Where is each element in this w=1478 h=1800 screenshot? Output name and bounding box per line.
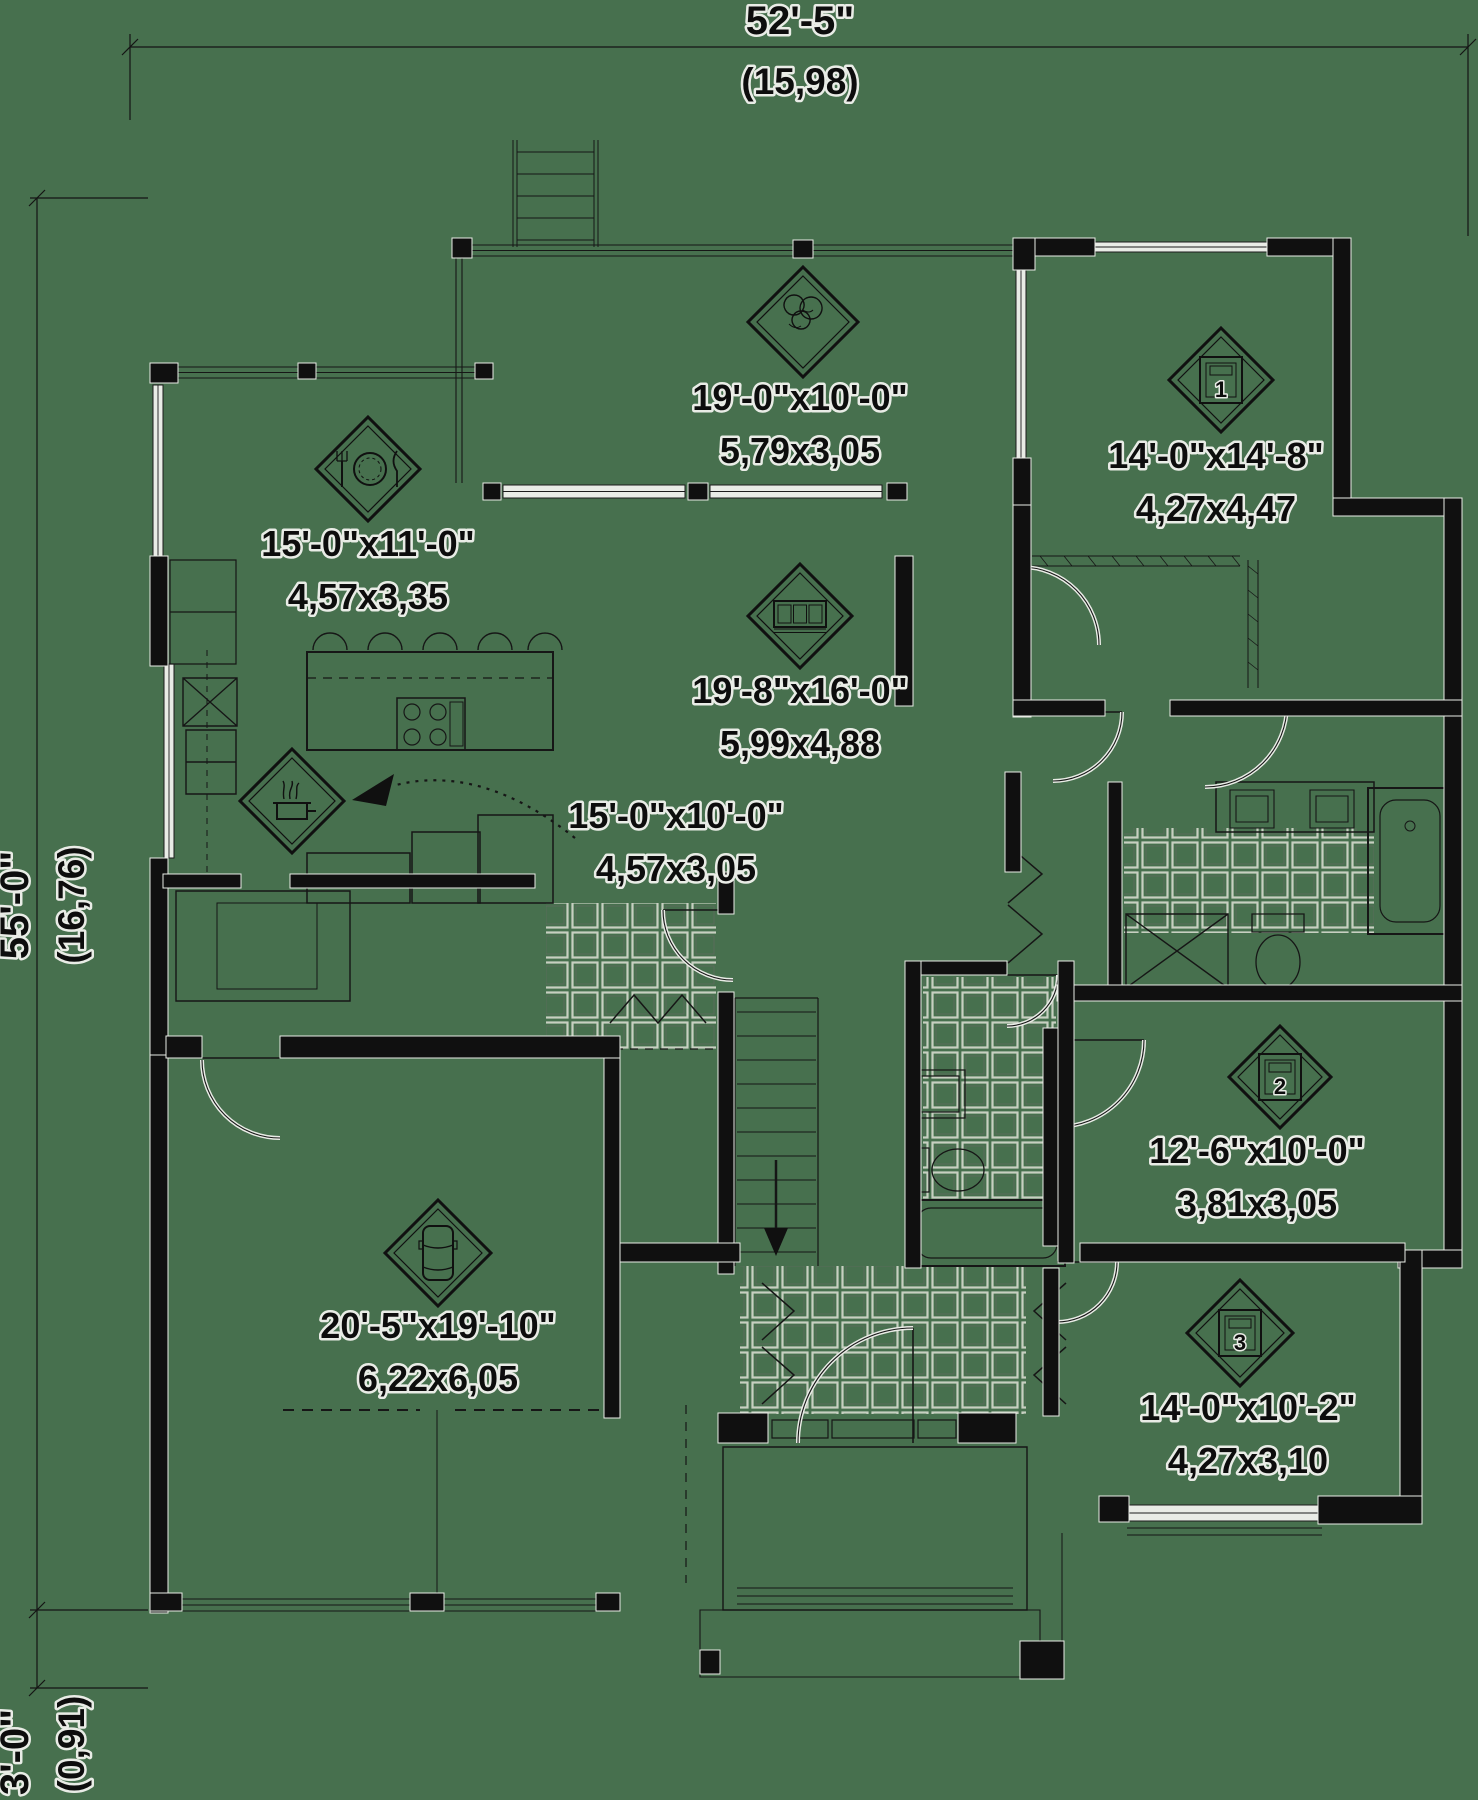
wall — [452, 238, 472, 258]
room-dimension-imperial: 12'-6"x10'-0" — [1149, 1130, 1364, 1171]
room-dimension-metric: 5,79x3,05 — [720, 430, 880, 471]
wall — [1099, 1496, 1129, 1522]
wall — [1013, 458, 1031, 510]
room-dimension-metric: 4,57x3,05 — [596, 848, 756, 889]
wall — [150, 1055, 168, 1613]
room-dimension-metric: 4,27x4,47 — [1136, 488, 1296, 529]
bed-number: 3 — [1234, 1330, 1246, 1355]
floor-plan-drawing: 19'-0"x10'-0"5,79x3,05114'-0"x14'-8"4,27… — [0, 0, 1478, 1800]
wall — [1043, 1028, 1059, 1246]
wall — [905, 961, 921, 1268]
wall — [1170, 700, 1462, 716]
porch-dimension-metric: (0,91) — [51, 1696, 92, 1793]
wall — [958, 1413, 1016, 1443]
wall — [1318, 1496, 1422, 1524]
room-dimension-imperial: 15'-0"x11'-0" — [261, 523, 474, 564]
room-dimension-imperial: 20'-5"x19'-10" — [320, 1305, 555, 1346]
wall — [596, 1593, 620, 1611]
wall — [604, 1058, 620, 1418]
room-dimension-imperial: 14'-0"x14'-8" — [1108, 435, 1323, 476]
room-dimension-metric: 4,57x3,35 — [288, 576, 448, 617]
wall — [1080, 1243, 1405, 1262]
tile-floor — [740, 1266, 1026, 1414]
floor-plan-sheet: 19'-0"x10'-0"5,79x3,05114'-0"x14'-8"4,27… — [0, 0, 1478, 1800]
top-dimension-imperial: 52'-5" — [746, 0, 855, 43]
wall — [793, 240, 813, 258]
wall — [718, 992, 734, 1274]
room-dimension-imperial: 15'-0"x10'-0" — [568, 795, 783, 836]
wall — [1032, 238, 1095, 256]
wall — [1400, 1250, 1422, 1502]
room-dimension-metric: 3,81x3,05 — [1177, 1183, 1337, 1224]
wall — [290, 874, 535, 888]
wall — [1444, 498, 1462, 1268]
wall — [150, 363, 178, 383]
wall — [1013, 505, 1031, 717]
room-dimension-metric: 6,22x6,05 — [358, 1358, 518, 1399]
wall — [1043, 1268, 1059, 1416]
wall — [1020, 1641, 1064, 1679]
wall — [688, 483, 708, 500]
room-dimension-metric: 4,27x3,10 — [1168, 1440, 1328, 1481]
room-dimension-imperial: 14'-0"x10'-2" — [1140, 1387, 1355, 1428]
wall — [475, 363, 493, 379]
bed-number: 1 — [1215, 377, 1227, 402]
wall — [410, 1593, 444, 1611]
wall — [483, 483, 501, 500]
wall — [1108, 782, 1122, 985]
left-dimension-imperial: 55'-0" — [0, 851, 37, 960]
wall — [887, 483, 907, 500]
wall — [718, 1413, 768, 1443]
left-dimension-metric: (16,76) — [51, 846, 92, 963]
wall — [1005, 772, 1021, 872]
wall — [298, 363, 316, 379]
wall — [921, 961, 1007, 975]
wall — [1013, 700, 1105, 716]
wall — [150, 556, 168, 666]
wall — [1057, 985, 1462, 1001]
tile-floor — [1124, 828, 1374, 933]
wall — [700, 1650, 720, 1674]
room-dimension-imperial: 19'-0"x10'-0" — [692, 377, 907, 418]
tile-floor — [923, 977, 1056, 1199]
bed-number: 2 — [1274, 1074, 1286, 1099]
wall — [1333, 238, 1351, 516]
wall — [1013, 238, 1035, 270]
top-dimension-metric: (15,98) — [741, 61, 858, 102]
porch-dimension-imperial: 3'-0" — [0, 1709, 37, 1795]
wall — [1333, 498, 1460, 516]
wall — [1058, 961, 1074, 1263]
room-dimension-metric: 5,99x4,88 — [720, 723, 880, 764]
wall — [620, 1243, 740, 1262]
wall — [150, 1593, 182, 1611]
tile-floor — [546, 903, 716, 1049]
wall — [166, 1036, 202, 1058]
room-dimension-imperial: 19'-8"x16'-0" — [692, 670, 907, 711]
wall — [163, 874, 241, 888]
wall — [280, 1036, 620, 1058]
